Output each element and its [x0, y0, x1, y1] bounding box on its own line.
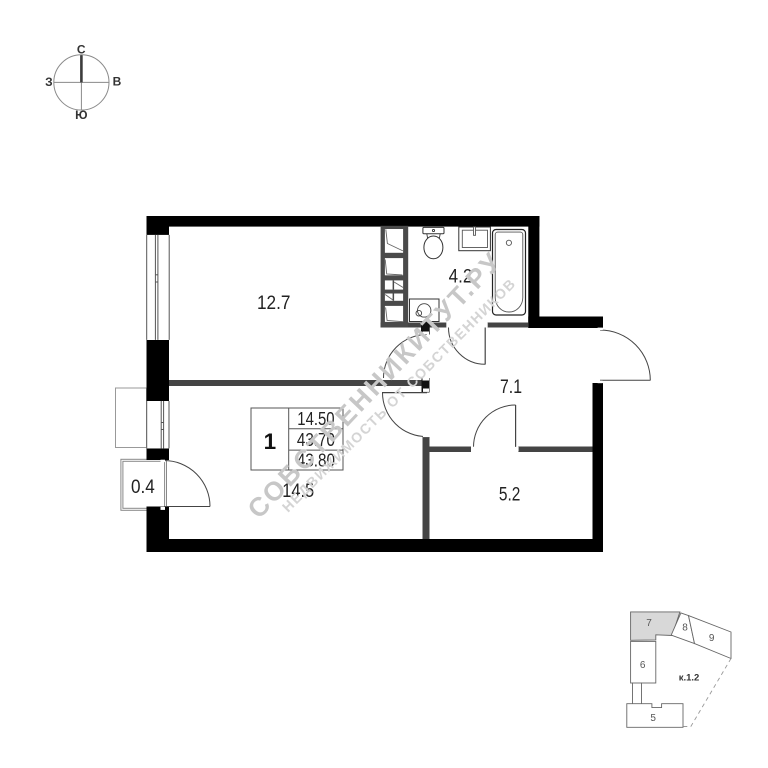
- svg-text:0.4: 0.4: [131, 477, 155, 498]
- svg-text:С: С: [77, 42, 86, 56]
- svg-text:5: 5: [650, 713, 656, 724]
- svg-text:8: 8: [682, 623, 688, 634]
- svg-text:7.1: 7.1: [500, 377, 522, 398]
- svg-text:Ю: Ю: [75, 108, 87, 122]
- svg-text:1: 1: [264, 429, 277, 454]
- svg-text:З: З: [45, 75, 53, 89]
- svg-text:В: В: [113, 75, 122, 89]
- svg-text:к.1.2: к.1.2: [679, 673, 700, 684]
- svg-text:9: 9: [709, 633, 715, 644]
- svg-text:7: 7: [646, 618, 652, 629]
- svg-text:5.2: 5.2: [499, 484, 521, 505]
- svg-text:12.7: 12.7: [257, 293, 291, 314]
- svg-text:6: 6: [640, 660, 646, 671]
